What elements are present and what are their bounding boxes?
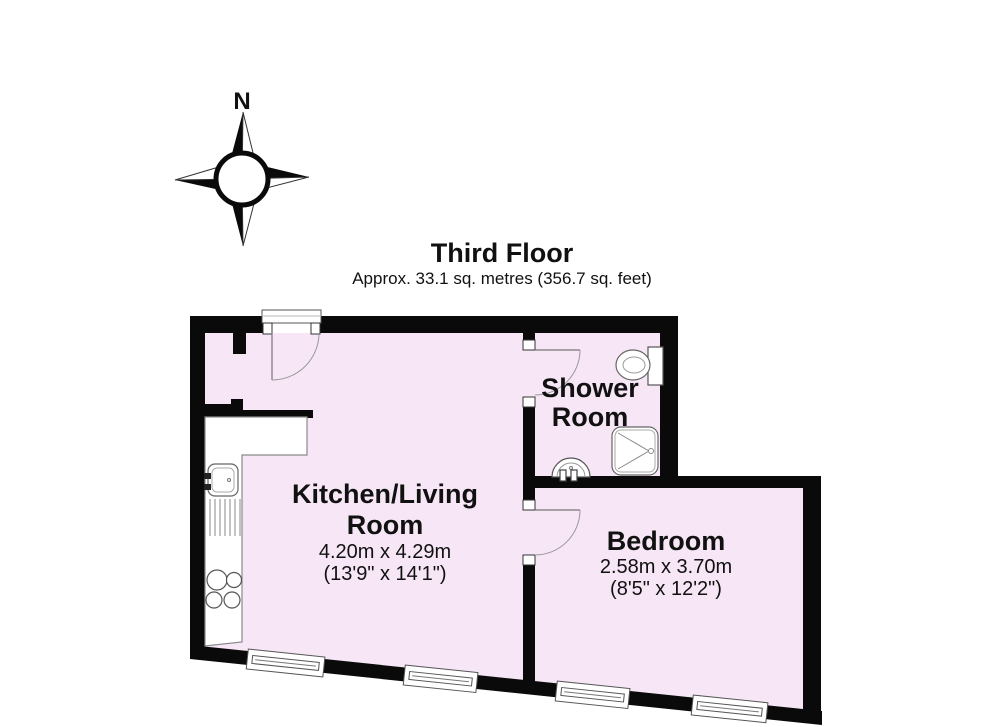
interior-wall-a	[203, 404, 243, 417]
shower-right-wall	[660, 316, 678, 488]
bedroom-top-wall	[523, 476, 821, 488]
kitchen-sink-icon	[204, 464, 238, 496]
bedroom-right-wall	[803, 476, 821, 716]
shower-room-label-line1: Shower	[541, 373, 639, 403]
page-title: Third Floor	[431, 238, 574, 268]
compass-rose-icon: N	[175, 88, 309, 246]
kitchen-living-label-line1: Kitchen/Living	[292, 479, 478, 509]
kitchen-living-label-line2: Room	[347, 510, 424, 540]
bedroom-label: Bedroom	[607, 526, 726, 556]
kitchen-living-dimensions-metric: 4.20m x 4.29m	[319, 541, 451, 563]
page-subtitle: Approx. 33.1 sq. metres (356.7 sq. feet)	[352, 269, 652, 288]
bedroom-dimensions-imperial: (8'5" x 12'2")	[610, 578, 722, 600]
top-wall-right	[320, 316, 678, 333]
entrance-wall-stub	[233, 333, 246, 354]
door-jamb	[523, 555, 535, 565]
shower-tray-icon	[612, 427, 658, 475]
door-jamb	[311, 323, 320, 334]
interior-wall-a-notch	[231, 399, 243, 405]
bedroom-dimensions-metric: 2.58m x 3.70m	[600, 556, 732, 578]
floorplan-canvas: N Third Floor Approx. 33.1 sq. metres (3…	[0, 0, 1000, 727]
floorplan-page: N Third Floor Approx. 33.1 sq. metres (3…	[0, 0, 1000, 727]
door-jamb	[523, 397, 535, 407]
shower-room-label-line2: Room	[552, 402, 629, 432]
compass-north-label: N	[233, 88, 250, 115]
left-wall	[190, 316, 205, 652]
door-jamb	[263, 323, 272, 334]
compass-circle	[216, 153, 268, 205]
kitchen-living-dimensions-imperial: (13'9" x 14'1")	[323, 563, 446, 585]
draining-board-icon	[210, 499, 240, 536]
door-jamb	[523, 340, 535, 350]
door-jamb	[523, 500, 535, 510]
